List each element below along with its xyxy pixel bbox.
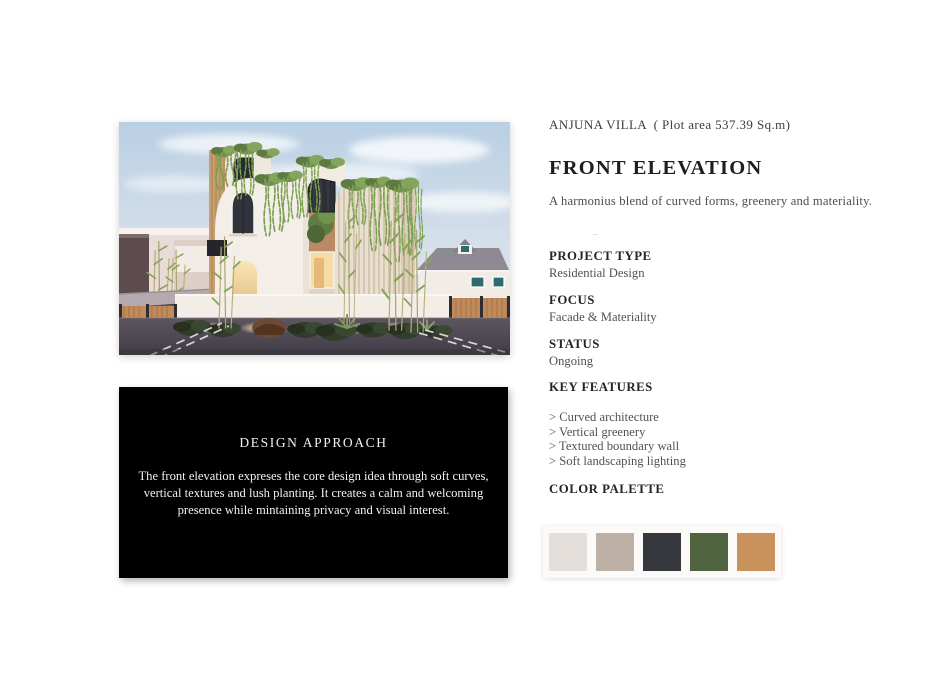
palette-swatch-charcoal: [643, 533, 681, 571]
detail-project-type: PROJECT TYPE Residential Design: [549, 249, 652, 281]
design-approach-title: DESIGN APPROACH: [119, 435, 508, 451]
detail-label: FOCUS: [549, 293, 657, 308]
palette-swatch-olive-green: [690, 533, 728, 571]
project-name-line: ANJUNA VILLA ( Plot area 537.39 Sq.m): [549, 117, 790, 133]
detail-label: PROJECT TYPE: [549, 249, 652, 264]
villa-render-scene: [119, 122, 510, 355]
key-features-label: KEY FEATURES: [549, 380, 653, 395]
design-approach-card: DESIGN APPROACH The front elevation expr…: [119, 387, 508, 578]
divider-mark: –: [593, 229, 598, 239]
villa-render-image: [119, 122, 510, 355]
palette-swatch-off-white: [549, 533, 587, 571]
detail-status: STATUS Ongoing: [549, 337, 600, 369]
feature-item: > Textured boundary wall: [549, 439, 686, 454]
palette-swatch-taupe: [596, 533, 634, 571]
feature-item: > Vertical greenery: [549, 425, 686, 440]
feature-item: > Soft landscaping lighting: [549, 454, 686, 469]
color-palette-label: COLOR PALETTE: [549, 482, 664, 497]
detail-value: Ongoing: [549, 354, 600, 369]
page-subtitle: A harmonius blend of curved forms, green…: [549, 194, 872, 209]
detail-value: Residential Design: [549, 266, 652, 281]
feature-item: > Curved architecture: [549, 410, 686, 425]
color-palette-strip: [543, 526, 781, 578]
page-title: FRONT ELEVATION: [549, 157, 762, 180]
design-approach-body: The front elevation expreses the core de…: [136, 468, 491, 518]
key-features-list: > Curved architecture > Vertical greener…: [549, 410, 686, 469]
detail-value: Facade & Materiality: [549, 310, 657, 325]
presentation-page: { "header": { "project_line": "ANJUNA VI…: [0, 0, 952, 673]
palette-swatch-terracotta: [737, 533, 775, 571]
detail-focus: FOCUS Facade & Materiality: [549, 293, 657, 325]
detail-label: STATUS: [549, 337, 600, 352]
